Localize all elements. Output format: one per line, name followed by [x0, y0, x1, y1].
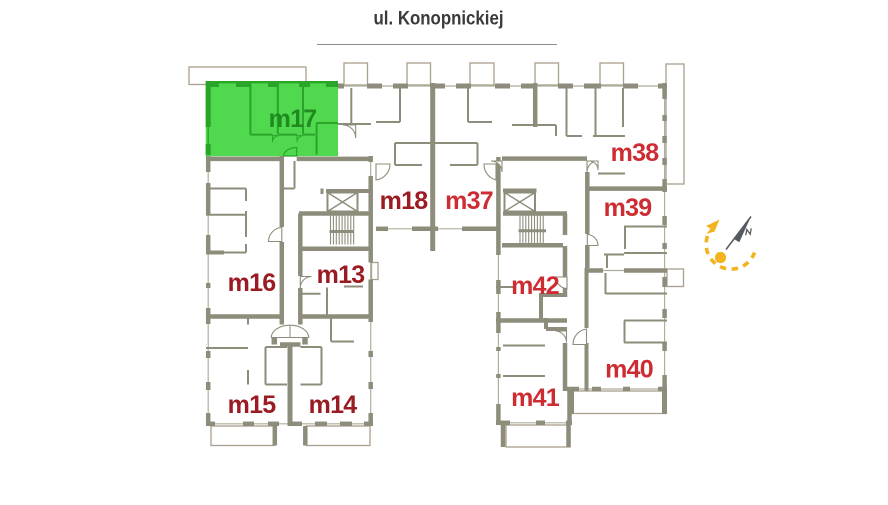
svg-text:m18: m18	[380, 187, 429, 215]
svg-text:ul. Konopnickiej: ul. Konopnickiej	[374, 9, 504, 30]
svg-text:m40: m40	[605, 356, 653, 384]
svg-text:m42: m42	[511, 272, 559, 300]
svg-text:m15: m15	[228, 391, 277, 419]
svg-text:m13: m13	[317, 261, 365, 289]
svg-text:m14: m14	[309, 391, 358, 419]
svg-text:m38: m38	[611, 139, 660, 167]
svg-text:m41: m41	[511, 384, 560, 412]
svg-text:m39: m39	[604, 194, 652, 222]
svg-text:m17: m17	[269, 105, 317, 133]
svg-text:m37: m37	[445, 187, 493, 215]
svg-text:m16: m16	[228, 269, 276, 297]
